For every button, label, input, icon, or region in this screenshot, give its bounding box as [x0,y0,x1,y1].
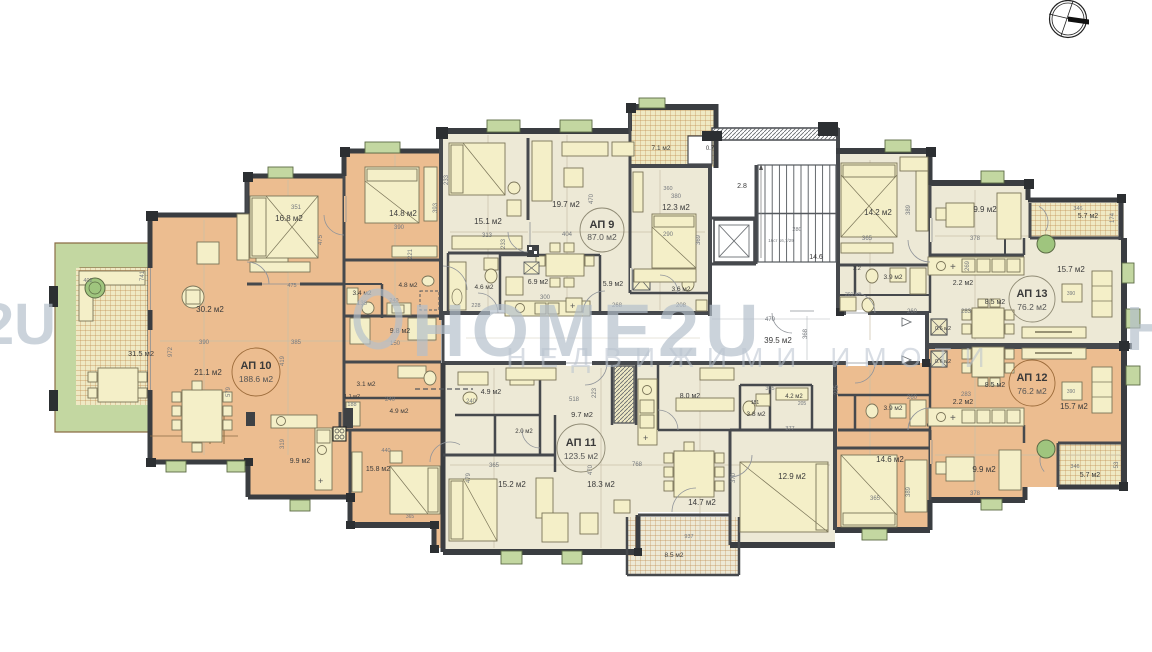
svg-text:233: 233 [444,174,450,185]
svg-text:470: 470 [588,464,594,475]
svg-text:0.7: 0.7 [706,146,715,152]
svg-text:2.2 м2: 2.2 м2 [953,399,973,406]
svg-text:2.8: 2.8 [737,183,747,190]
svg-text:16.8 м2: 16.8 м2 [275,214,303,223]
svg-text:9.9 м2: 9.9 м2 [973,205,997,214]
svg-text:18.3 м2: 18.3 м2 [587,480,615,489]
svg-text:4.2 м2: 4.2 м2 [785,394,803,400]
svg-text:12.9 м2: 12.9 м2 [778,472,806,481]
svg-text:240: 240 [466,399,477,405]
svg-text:15.1 м2: 15.1 м2 [474,217,502,226]
svg-text:9.9 м2: 9.9 м2 [290,458,310,465]
svg-text:377: 377 [785,426,794,432]
svg-text:30.2 м2: 30.2 м2 [196,305,224,314]
svg-text:3.9 м2: 3.9 м2 [884,405,903,412]
svg-text:4.9 м2: 4.9 м2 [390,408,409,415]
svg-text:123.5 м2: 123.5 м2 [564,451,598,461]
svg-text:201 м2: 201 м2 [845,292,861,298]
svg-text:+: + [950,413,956,424]
svg-text:15.2 м2: 15.2 м2 [498,480,526,489]
svg-text:972: 972 [168,346,174,357]
svg-text:269: 269 [965,260,971,271]
svg-text:188.6 м2: 188.6 м2 [239,374,273,384]
svg-text:АП 10: АП 10 [241,360,272,372]
svg-text:479: 479 [466,472,472,483]
svg-text:470: 470 [765,317,776,323]
svg-text:741: 741 [140,270,146,281]
svg-text:346: 346 [1073,206,1082,212]
svg-text:283: 283 [961,309,972,315]
svg-text:313: 313 [482,233,493,239]
svg-text:3.8 м2: 3.8 м2 [747,411,766,418]
svg-text:3.9 м2: 3.9 м2 [884,274,903,281]
svg-text:14.7 м2: 14.7 м2 [688,498,716,507]
svg-text:2.0 м2: 2.0 м2 [515,429,533,435]
svg-text:393: 393 [433,202,439,213]
svg-text:4.8 м2: 4.8 м2 [399,282,418,289]
svg-text:260: 260 [907,395,918,401]
svg-text:370: 370 [731,472,737,483]
svg-text:3.1 м2: 3.1 м2 [357,381,376,388]
svg-text:7.1 м2: 7.1 м2 [652,145,671,152]
svg-text:402: 402 [83,278,92,284]
svg-text:HO: HO [1126,295,1152,364]
svg-text:389: 389 [906,204,912,215]
svg-text:365: 365 [870,496,881,502]
svg-text:АП 12: АП 12 [1017,372,1048,384]
svg-text:8.5 м2: 8.5 м2 [665,552,684,559]
svg-text:14.8 м2: 14.8 м2 [389,209,417,218]
svg-text:15.8 м2: 15.8 м2 [366,466,390,473]
svg-text:АП 13: АП 13 [1017,288,1048,300]
svg-text:9.9 м2: 9.9 м2 [972,465,996,474]
svg-text:225: 225 [834,384,840,395]
svg-text:15.7 м2: 15.7 м2 [1057,265,1085,274]
svg-text:АП 11: АП 11 [566,437,596,449]
svg-text:8.5 м2: 8.5 м2 [985,299,1005,306]
svg-text:280: 280 [792,227,801,233]
svg-text:1.1 м2: 1.1 м2 [344,394,360,400]
svg-text:389: 389 [906,486,912,497]
svg-text:205: 205 [798,401,807,407]
svg-text:14.2 м2: 14.2 м2 [864,208,892,217]
svg-text:365: 365 [862,236,873,242]
svg-text:19.7 м2: 19.7 м2 [552,200,580,209]
svg-text:6.9 м2: 6.9 м2 [528,279,548,286]
svg-text:0.6 м2: 0.6 м2 [935,326,951,332]
svg-text:5.9 м2: 5.9 м2 [603,281,623,288]
svg-text:12.3 м2: 12.3 м2 [662,203,690,212]
svg-text:365: 365 [765,386,774,392]
svg-text:221: 221 [408,248,414,259]
svg-text:21.1 м2: 21.1 м2 [194,368,222,377]
svg-text:+: + [950,262,956,273]
svg-text:2U: 2U [0,292,56,357]
svg-text:390: 390 [1067,291,1076,297]
svg-text:87.0 м2: 87.0 м2 [587,232,617,242]
svg-text:174: 174 [1110,212,1116,223]
svg-text:240: 240 [385,397,396,403]
svg-text:181: 181 [751,400,760,406]
svg-text:НЕДВИЖИМИ ИМОТИ: НЕДВИЖИМИ ИМОТИ [506,342,997,373]
svg-text:+: + [643,433,648,443]
svg-text:283: 283 [961,392,972,398]
svg-text:76.2 м2: 76.2 м2 [1017,302,1047,312]
svg-text:404: 404 [562,232,573,238]
svg-text:369: 369 [696,234,702,245]
svg-text:14.6: 14.6 [809,254,823,261]
svg-text:390: 390 [394,225,405,231]
svg-text:518: 518 [569,397,580,403]
svg-text:475: 475 [287,283,296,289]
svg-text:8.5 м2: 8.5 м2 [985,382,1005,389]
svg-text:378: 378 [970,491,981,497]
svg-text:365: 365 [489,463,500,469]
svg-text:188: 188 [347,402,356,408]
svg-text:31.5 м2: 31.5 м2 [128,349,154,358]
svg-text:14.6 м2: 14.6 м2 [876,455,904,464]
svg-text:360: 360 [663,186,672,192]
svg-text:440: 440 [381,448,390,454]
svg-text:53: 53 [1114,461,1120,468]
svg-text:368: 368 [803,328,809,339]
svg-text:390: 390 [1067,389,1076,395]
svg-text:233: 233 [501,238,507,249]
svg-text:419: 419 [280,355,286,366]
svg-text:937: 937 [684,534,693,540]
svg-text:351: 351 [291,205,302,211]
svg-text:290: 290 [663,232,674,238]
svg-text:380: 380 [671,194,682,200]
svg-text:223: 223 [592,387,598,398]
svg-text:470: 470 [589,193,595,204]
svg-text:475: 475 [318,234,324,245]
svg-text:76.2 м2: 76.2 м2 [1017,386,1047,396]
svg-text:319: 319 [280,438,286,449]
svg-text:4.9 м2: 4.9 м2 [481,389,501,396]
svg-text:16ст 16,7/29: 16ст 16,7/29 [768,238,794,243]
svg-text:9.7 м2: 9.7 м2 [571,410,593,419]
svg-text:579: 579 [226,386,232,397]
svg-text:5.7 м2: 5.7 м2 [1080,472,1100,479]
svg-text:768: 768 [632,462,643,468]
svg-text:2.2 м2: 2.2 м2 [953,280,973,287]
svg-text:2.2: 2.2 [853,266,861,272]
svg-text:378: 378 [970,236,981,242]
svg-text:365: 365 [406,514,415,520]
svg-text:346: 346 [1070,464,1079,470]
svg-text:АП 9: АП 9 [590,219,615,231]
svg-text:260: 260 [907,309,918,315]
svg-text:15.7 м2: 15.7 м2 [1060,402,1088,411]
svg-text:8.0 м2: 8.0 м2 [680,393,700,400]
svg-text:390: 390 [199,340,210,346]
svg-text:385: 385 [291,340,302,346]
svg-text:+: + [318,476,323,486]
svg-text:5.7 м2: 5.7 м2 [1078,213,1098,220]
